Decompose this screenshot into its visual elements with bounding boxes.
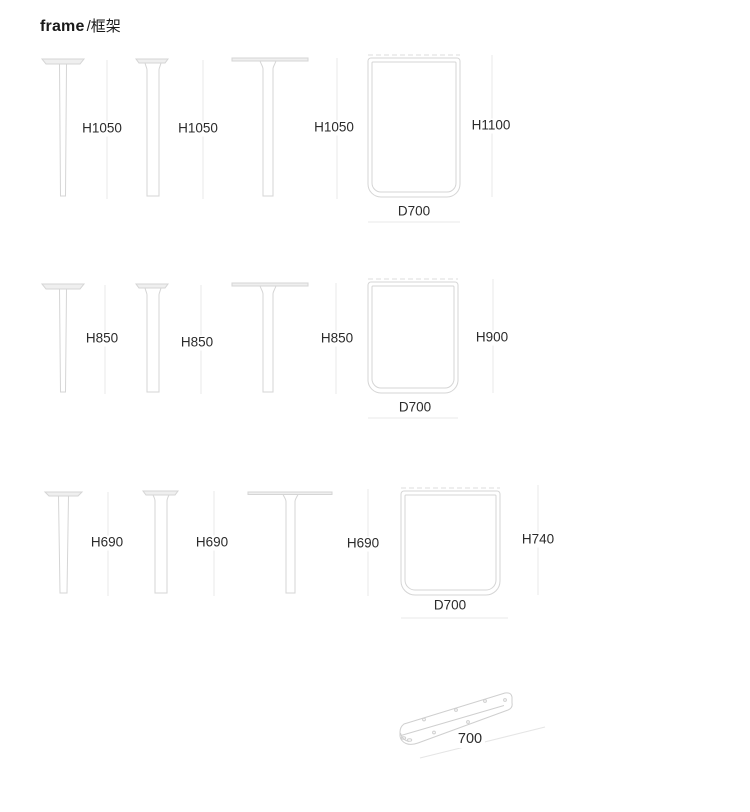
row3-dimension-lines <box>108 485 538 596</box>
row3-frame-height-label: H740 <box>519 533 557 548</box>
row1-leg1-height-label: H1050 <box>79 122 125 137</box>
row2-dimension-lines <box>105 279 493 394</box>
row2-leg3-height-label: H850 <box>318 332 356 347</box>
row1-leg-collar-top <box>136 59 168 196</box>
row2-u-frame <box>368 279 458 418</box>
row3-leg-disc-top <box>45 492 82 593</box>
row1-dimension-lines <box>107 55 492 199</box>
row1-leg-disc-top <box>42 59 84 196</box>
row1-frame-depth-label: D700 <box>395 205 433 220</box>
row3-leg-collar-top <box>143 491 178 593</box>
row1-leg3-height-label: H1050 <box>311 121 357 136</box>
row2-frame-depth-label: D700 <box>396 401 434 416</box>
row3-frame-depth-label: D700 <box>431 599 469 614</box>
row2-leg-collar-top <box>136 284 168 392</box>
row2-frame-height-label: H900 <box>473 331 511 346</box>
row2-leg-wide-plate <box>232 283 308 392</box>
row1-leg2-height-label: H1050 <box>175 122 221 137</box>
row3-leg1-height-label: H690 <box>88 536 126 551</box>
row3-leg-wide-plate <box>248 492 332 593</box>
row1-frame-height-label: H1100 <box>469 119 514 134</box>
row3-leg2-height-label: H690 <box>193 536 231 551</box>
row1-u-frame <box>368 55 460 222</box>
row1-leg-wide-plate <box>232 58 308 196</box>
spec-sheet: frame /框架 <box>0 0 750 812</box>
row2-leg-disc-top <box>42 284 84 392</box>
row2-leg1-height-label: H850 <box>83 332 121 347</box>
row3-leg3-height-label: H690 <box>344 537 382 552</box>
bracket-length-label: 700 <box>455 732 485 748</box>
row2-leg2-height-label: H850 <box>178 336 216 351</box>
